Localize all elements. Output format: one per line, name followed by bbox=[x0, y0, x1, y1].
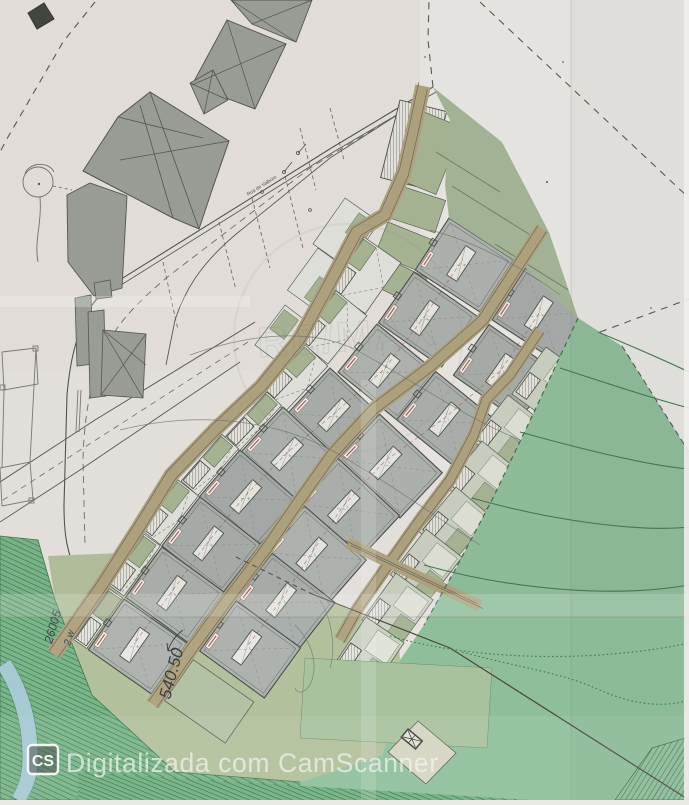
svg-text:CS: CS bbox=[32, 753, 55, 770]
svg-text:Digitalizada com CamScanner: Digitalizada com CamScanner bbox=[66, 748, 439, 778]
